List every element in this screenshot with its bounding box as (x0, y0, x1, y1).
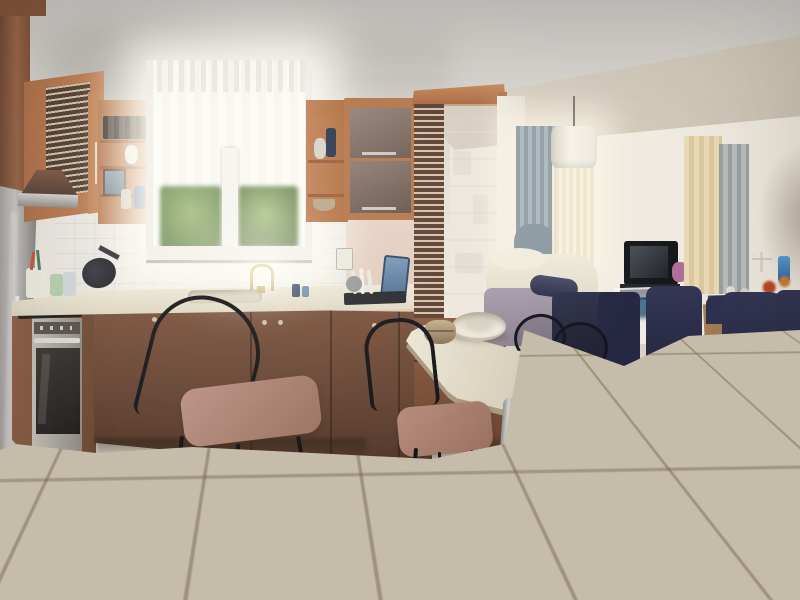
range-hood-rim (18, 193, 78, 208)
tv-screen (630, 246, 668, 278)
blue-bottle (134, 186, 145, 209)
navy-chair (598, 292, 640, 374)
tall-cabinet-crown (0, 0, 46, 16)
basket-weave-line (426, 330, 454, 332)
cabinet-knob (262, 320, 267, 325)
shelf-edge (308, 194, 346, 197)
cream-sheer-curtain (552, 152, 594, 264)
drinking-glass (50, 274, 63, 296)
lamp-rod (573, 96, 575, 130)
oven-knobs (40, 326, 72, 330)
cabinet-door-handle (362, 152, 396, 155)
table-leg-shadow (502, 582, 524, 590)
wooden-chair-leg (729, 400, 739, 446)
glassware-item (452, 150, 472, 176)
cabinet-knob (278, 320, 283, 325)
wooden-chair-leg (788, 420, 797, 472)
glassware-item (454, 252, 484, 274)
candelabra (760, 252, 763, 272)
shelf-edge (100, 140, 150, 143)
cabinet-handle (95, 142, 97, 184)
candelabra-arms (752, 258, 772, 260)
mauve-seat-cushion (396, 400, 494, 458)
beige-curtain (684, 136, 722, 294)
sofa-cushion (492, 248, 546, 270)
navy-chair (776, 290, 800, 422)
glassware-item (472, 194, 489, 225)
wall-cabinet-door-upper (350, 108, 411, 158)
apartment-photo: Panoramic daytime photo of an open-plan … (0, 0, 800, 600)
candle (768, 252, 772, 256)
cabinet-door-handle (362, 207, 396, 210)
pendant-lamp (551, 126, 597, 168)
candle (752, 252, 756, 256)
utensil-cup (26, 268, 46, 298)
serving-bowl (452, 312, 506, 341)
navy-chair (646, 286, 702, 380)
gray-figurine (314, 138, 326, 159)
table-floor-shadow (300, 450, 620, 560)
drinking-glass (63, 272, 76, 296)
white-figurine (125, 145, 138, 164)
dark-shelf-items (103, 116, 146, 139)
navy-chair (722, 292, 780, 402)
display-cabinet-louver-side (414, 104, 444, 320)
wall-cabinet-door-lower (350, 161, 411, 213)
gray-curtain-right (719, 144, 749, 294)
shelf-edge (308, 160, 346, 163)
gray-bottle (121, 189, 131, 209)
oven-handle (34, 338, 80, 343)
dark-bottle (326, 128, 336, 157)
